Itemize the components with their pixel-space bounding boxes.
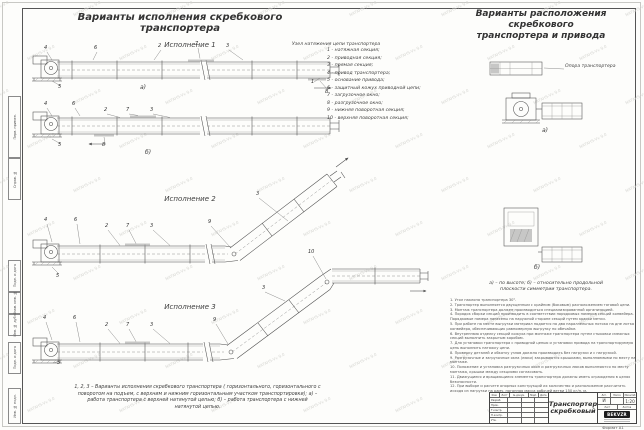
callout: 7 — [195, 42, 198, 47]
technical-notes: 1. Угол наклона транспортера 30°. 2. Тра… — [450, 298, 637, 394]
document-title: Транспортер скребковый — [549, 393, 598, 423]
scale-value: 1:20 — [624, 398, 636, 405]
document-title-line2: скребковый — [550, 408, 595, 416]
callout: 3 — [150, 323, 153, 328]
frame-cell: Подп. и дата — [8, 260, 21, 292]
callout: 4 — [44, 218, 47, 223]
note-line: 11. Движущиеся и вращающиеся элементы тр… — [450, 375, 637, 385]
callout: 4 — [44, 102, 47, 107]
format-label: Формат А1 — [590, 425, 636, 430]
frame-label: Перв. примен. — [13, 114, 17, 139]
frame-label: Справ. № — [13, 171, 17, 188]
frame-label: Взам. инв. № — [13, 291, 17, 315]
conveyor-drawings: .ln{stroke:#4d4d4d;stroke-width:0.55;fil… — [24, 40, 444, 390]
frame-cell: Справ. № — [8, 158, 21, 200]
stamp-empty-cell — [522, 418, 536, 423]
frame-cell: Инв. № дубл. — [8, 314, 21, 336]
callout: 2 — [105, 323, 108, 328]
callout: 4 — [43, 316, 46, 321]
frame-cell: Подп. и дата — [8, 342, 21, 374]
arrangement-drawings: .ln2{stroke:#4d4d4d;stroke-width:0.55;fi… — [450, 55, 640, 295]
title-block-right-grid: Лит. Масса Масштаб И 1:20 Лист Листов BE… — [598, 393, 636, 423]
callout: 4 — [44, 46, 47, 51]
drawing-sheet: NATAHS-Vv 9.0NATAHS-Vv 9.0NATAHS-Vv 9.0N… — [0, 0, 644, 430]
callout: 2 — [158, 44, 161, 49]
caption-line: натянутой цепью. — [55, 405, 340, 412]
page-title-left: Варианты исполнения скребкового транспор… — [40, 12, 320, 34]
callout: 6 — [74, 218, 77, 223]
frame-label: Инв. № дубл. — [13, 313, 17, 337]
frame-cell: Инв. № подл. — [8, 388, 21, 424]
callout: 3 — [262, 286, 265, 291]
logo-subtext-line — [604, 421, 630, 422]
callout: 6 — [72, 102, 75, 107]
callout: 7 — [126, 224, 129, 229]
note-line: 7. Для установки транспортера с приводно… — [450, 341, 637, 351]
callout: 8 — [102, 143, 105, 148]
title-block-left-grid: Изм. Лист № докум. Подп. Дата Разраб. Пр… — [490, 393, 549, 423]
note-line: 5. При работе на месте выгрузки материал… — [450, 322, 637, 332]
callout: 5 — [58, 143, 61, 148]
note-line: 10. Положение и установка разгрузочных о… — [450, 365, 637, 375]
callout: 3 — [150, 224, 153, 229]
page-title-right: Варианты расположения скребкового трансп… — [444, 9, 638, 42]
callout: 9 — [208, 220, 211, 225]
note-line: 6. Внутреннюю отделку секций кожуха при … — [450, 332, 637, 342]
callout: 8 — [325, 90, 328, 95]
lit-value: И — [598, 398, 611, 405]
callout: 10 — [308, 250, 314, 255]
company-logo: BEKVZR — [604, 411, 630, 418]
note-line: 9. Разгрузочные и загрузочные окна (люки… — [450, 356, 637, 366]
right-views-caption: а) – по высоте; б) – относительно продол… — [458, 281, 634, 294]
callout: 9 — [213, 318, 216, 323]
stamp-empty-cell — [508, 418, 522, 423]
callout: 7 — [126, 323, 129, 328]
mass-value — [611, 398, 624, 405]
callout: 2 — [104, 108, 107, 113]
left-bottom-caption: 1, 2, 3 – Варианты исполнения скребковог… — [55, 385, 340, 411]
callout: 3 — [150, 108, 153, 113]
caption-line: 1, 2, 3 – Варианты исполнения скребковог… — [55, 385, 340, 392]
callout: 3 — [256, 192, 259, 197]
frame-label: Инв. № подл. — [13, 394, 17, 418]
frame-label: Подп. и дата — [13, 346, 17, 369]
callout: 6 — [94, 46, 97, 51]
callout: 5 — [56, 274, 59, 279]
callout: 1 — [311, 80, 314, 85]
callout: 2 — [105, 224, 108, 229]
frame-cell: Взам. инв. № — [8, 292, 21, 314]
page-title-right-line1: Варианты расположения скребкового — [444, 9, 638, 31]
stamp-empty-cell — [535, 418, 548, 423]
frame-label: Подп. и дата — [13, 264, 17, 287]
callout: 6 — [73, 316, 76, 321]
caption-line: плоскости симметрии транспортера. — [458, 287, 634, 293]
note-line: 4. Порядок сборки секций производить в с… — [450, 312, 637, 322]
note-line: 2. Транспортер выполняется двухцепным с … — [450, 303, 637, 308]
callout: 5 — [57, 361, 60, 366]
stamp-row-label: Утв. — [490, 418, 508, 423]
callout: 5 — [58, 85, 61, 90]
caption-line: работа транспортера с верхней натянутой … — [55, 398, 340, 405]
note-line: 8. Проверку деталей и обкатку узлов долж… — [450, 351, 637, 356]
page-title-right-line2: транспортера и привода — [444, 31, 638, 42]
frame-cell: Перв. примен. — [8, 96, 21, 158]
title-block: Изм. Лист № докум. Подп. Дата Разраб. Пр… — [489, 392, 637, 424]
callout: 7 — [126, 108, 129, 113]
logo-subtext-line — [604, 419, 630, 420]
callout: 3 — [226, 44, 229, 49]
